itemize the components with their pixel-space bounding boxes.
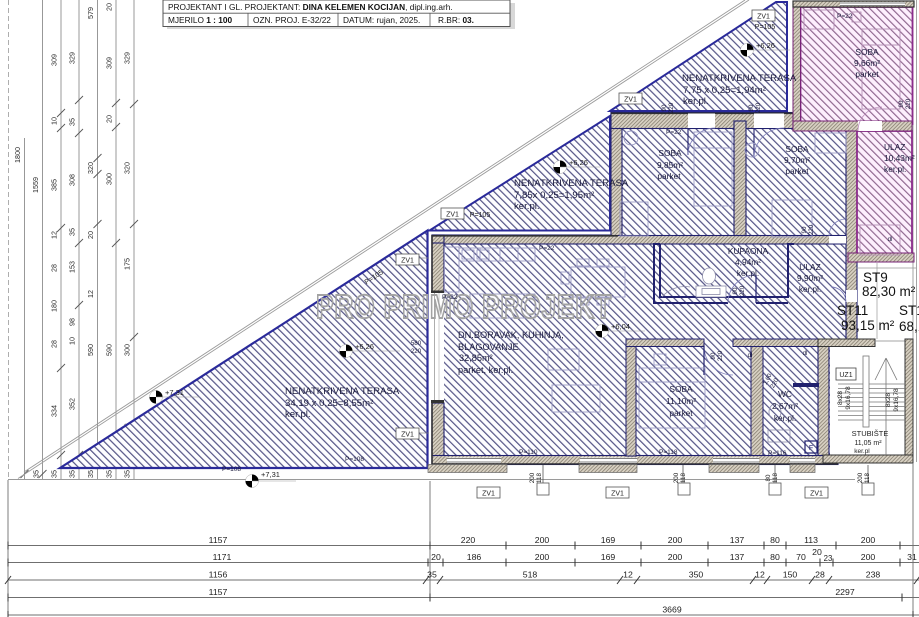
svg-text:1156: 1156 xyxy=(209,570,228,580)
svg-text:220: 220 xyxy=(905,98,912,109)
svg-text:35: 35 xyxy=(68,470,77,478)
svg-text:9x16,78: 9x16,78 xyxy=(845,386,852,410)
svg-text:200: 200 xyxy=(861,552,876,562)
svg-text:ST11: ST11 xyxy=(837,303,868,318)
svg-text:1171: 1171 xyxy=(213,552,232,562)
svg-text:9,66m²: 9,66m² xyxy=(854,58,880,68)
svg-text:80: 80 xyxy=(765,474,772,481)
svg-text:NENATKRIVENA TERASA: NENATKRIVENA TERASA xyxy=(285,386,400,397)
svg-text:2297: 2297 xyxy=(835,587,854,597)
svg-text:35: 35 xyxy=(32,470,41,478)
svg-text:175: 175 xyxy=(123,258,132,270)
svg-text:WC: WC xyxy=(778,389,792,399)
svg-text:+7,31: +7,31 xyxy=(165,388,184,397)
svg-text:200: 200 xyxy=(673,472,680,483)
svg-text:238: 238 xyxy=(866,570,881,580)
svg-text:590: 590 xyxy=(86,344,95,356)
svg-text:ker.pl.: ker.pl. xyxy=(285,409,311,420)
svg-text:ker.pl.: ker.pl. xyxy=(884,164,906,174)
svg-text:300: 300 xyxy=(123,344,132,356)
svg-text:parket: parket xyxy=(855,69,879,79)
svg-text:10,43m²: 10,43m² xyxy=(884,153,915,163)
svg-text:309: 309 xyxy=(50,54,59,66)
svg-text:90: 90 xyxy=(732,287,739,294)
svg-text:NENATKRIVENA TERASA: NENATKRIVENA TERASA xyxy=(514,178,629,189)
svg-text:153: 153 xyxy=(68,261,77,273)
svg-text:+6,04: +6,04 xyxy=(611,322,630,331)
svg-text:ZV1: ZV1 xyxy=(611,491,624,498)
svg-text:12: 12 xyxy=(86,290,95,298)
svg-text:180: 180 xyxy=(50,300,59,312)
svg-text:320: 320 xyxy=(123,162,132,174)
svg-text:3669: 3669 xyxy=(662,605,681,615)
svg-text:90: 90 xyxy=(801,226,808,233)
svg-text:28: 28 xyxy=(815,570,825,580)
svg-text:200: 200 xyxy=(861,535,876,545)
svg-text:+6,26: +6,26 xyxy=(355,342,374,351)
svg-text:186: 186 xyxy=(467,552,482,562)
svg-text:P=22: P=22 xyxy=(539,245,555,252)
svg-text:10: 10 xyxy=(68,337,77,345)
svg-text:90: 90 xyxy=(898,100,905,107)
svg-text:1157: 1157 xyxy=(209,535,228,545)
svg-text:ker.pl.: ker.pl. xyxy=(683,96,709,107)
svg-text:12: 12 xyxy=(755,570,765,580)
svg-text:UZ1: UZ1 xyxy=(839,372,852,379)
svg-text:parket: parket xyxy=(669,408,693,418)
svg-text:+6,26: +6,26 xyxy=(756,41,775,50)
svg-text:SOBA: SOBA xyxy=(658,148,682,158)
svg-text:220: 220 xyxy=(755,102,762,113)
svg-text:90: 90 xyxy=(661,104,668,111)
svg-text:220: 220 xyxy=(668,102,675,113)
svg-text:11,05 m²: 11,05 m² xyxy=(854,440,882,447)
svg-text:+7,31: +7,31 xyxy=(261,470,280,479)
svg-text:20: 20 xyxy=(431,552,441,562)
svg-text:P=22: P=22 xyxy=(837,13,853,20)
svg-text:90: 90 xyxy=(748,104,755,111)
svg-text:35: 35 xyxy=(105,470,114,478)
svg-text:8x28: 8x28 xyxy=(885,393,892,407)
svg-text:23: 23 xyxy=(824,554,833,563)
svg-text:329: 329 xyxy=(123,52,132,64)
svg-text:MJERILO 1 : 100: MJERILO 1 : 100 xyxy=(168,15,232,25)
svg-text:150: 150 xyxy=(783,570,798,580)
svg-text:12: 12 xyxy=(50,231,59,239)
svg-text:35: 35 xyxy=(68,118,77,126)
svg-text:28: 28 xyxy=(50,340,59,348)
svg-text:137: 137 xyxy=(730,535,745,545)
svg-text:70: 70 xyxy=(796,552,806,562)
svg-text:dl: dl xyxy=(748,352,753,359)
svg-text:ker.pl.: ker.pl. xyxy=(799,284,821,294)
svg-text:28: 28 xyxy=(50,264,59,272)
svg-text:200: 200 xyxy=(535,552,550,562)
svg-text:220: 220 xyxy=(739,285,746,296)
svg-text:KUPAONA: KUPAONA xyxy=(728,246,769,256)
svg-text:10: 10 xyxy=(50,117,59,125)
svg-text:ULAZ: ULAZ xyxy=(884,142,905,152)
svg-text:ZV1: ZV1 xyxy=(810,491,823,498)
svg-text:98: 98 xyxy=(68,318,77,326)
svg-text:220: 220 xyxy=(461,535,476,545)
svg-text:329: 329 xyxy=(68,52,77,64)
svg-text:12: 12 xyxy=(623,570,633,580)
svg-text:P=105: P=105 xyxy=(755,24,776,31)
svg-text:9,90m²: 9,90m² xyxy=(797,273,823,283)
svg-text:R.BR: 03.: R.BR: 03. xyxy=(438,15,474,25)
svg-text:32,85m²: 32,85m² xyxy=(459,353,493,363)
svg-text:PRO PRIMO PROJEKT: PRO PRIMO PROJEKT xyxy=(316,288,612,325)
svg-text:8x28: 8x28 xyxy=(837,391,844,405)
svg-text:80: 80 xyxy=(770,552,780,562)
svg-text:P=108: P=108 xyxy=(345,456,364,463)
svg-text:7,85x 0,25=1,95m²: 7,85x 0,25=1,95m² xyxy=(514,190,595,201)
svg-text:NENATKRIVENA TERASA: NENATKRIVENA TERASA xyxy=(682,73,797,84)
svg-text:590: 590 xyxy=(105,344,114,356)
svg-text:580: 580 xyxy=(411,340,422,347)
svg-text:dl: dl xyxy=(888,236,893,243)
svg-text:dl: dl xyxy=(803,350,808,357)
svg-text:1157: 1157 xyxy=(209,587,228,597)
svg-text:OZN. PROJ. E-32/22: OZN. PROJ. E-32/22 xyxy=(253,15,331,25)
svg-text:518: 518 xyxy=(523,570,538,580)
svg-text:82,30 m²: 82,30 m² xyxy=(862,284,916,299)
svg-text:P=108: P=108 xyxy=(222,466,241,473)
svg-text:P=110: P=110 xyxy=(519,449,538,456)
svg-text:DN.BORAVAK, KUHINJA,: DN.BORAVAK, KUHINJA, xyxy=(458,330,564,340)
svg-text:1559: 1559 xyxy=(31,177,40,193)
svg-text:ST1: ST1 xyxy=(899,303,919,318)
svg-text:ZV1: ZV1 xyxy=(757,14,770,21)
svg-text:parket: parket xyxy=(657,171,681,181)
svg-text:ZV1: ZV1 xyxy=(401,258,414,265)
svg-text:352: 352 xyxy=(68,398,77,410)
svg-text:200: 200 xyxy=(857,472,864,483)
svg-text:BLAGOVANJE: BLAGOVANJE xyxy=(458,342,519,352)
svg-text:220: 220 xyxy=(808,224,815,235)
svg-text:118: 118 xyxy=(772,473,779,483)
svg-text:68,1: 68,1 xyxy=(899,319,919,334)
svg-text:F: F xyxy=(809,445,813,452)
svg-text:35: 35 xyxy=(86,470,95,478)
svg-text:P=116: P=116 xyxy=(768,450,787,457)
svg-text:ZV1: ZV1 xyxy=(624,97,637,104)
svg-text:118: 118 xyxy=(536,473,543,483)
svg-text:20: 20 xyxy=(812,547,822,557)
svg-text:350: 350 xyxy=(689,570,704,580)
svg-text:ZV1: ZV1 xyxy=(446,212,459,219)
svg-text:200: 200 xyxy=(668,535,683,545)
svg-text:STUBIŠTE: STUBIŠTE xyxy=(852,429,889,438)
svg-text:ker.pl.: ker.pl. xyxy=(514,201,540,212)
svg-text:ST9: ST9 xyxy=(863,270,888,285)
svg-text:ZV1: ZV1 xyxy=(482,491,495,498)
svg-text:80: 80 xyxy=(770,535,780,545)
svg-text:SOBA: SOBA xyxy=(855,47,879,57)
svg-text:parket: parket xyxy=(785,166,809,176)
svg-text:1800: 1800 xyxy=(13,147,22,163)
svg-text:308: 308 xyxy=(68,174,77,186)
svg-text:579: 579 xyxy=(86,7,95,19)
svg-text:P=22: P=22 xyxy=(666,129,682,136)
svg-text:200: 200 xyxy=(668,552,683,562)
svg-text:200: 200 xyxy=(529,472,536,483)
svg-text:34,19 x 0,25=8,55m²: 34,19 x 0,25=8,55m² xyxy=(285,398,374,409)
svg-text:9x16,78: 9x16,78 xyxy=(893,388,900,412)
svg-text:DATUM: rujan, 2025.: DATUM: rujan, 2025. xyxy=(343,15,420,25)
svg-text:SOBA: SOBA xyxy=(785,144,809,154)
svg-text:+6,26: +6,26 xyxy=(569,158,588,167)
svg-text:7,75 x 0,25=1,94m²: 7,75 x 0,25=1,94m² xyxy=(683,85,767,96)
svg-text:PROJEKTANT I GL. PROJEKTANT: D: PROJEKTANT I GL. PROJEKTANT: DINA KELEME… xyxy=(168,2,453,12)
svg-text:220: 220 xyxy=(411,348,422,355)
svg-text:113: 113 xyxy=(804,535,818,545)
svg-text:4,94m²: 4,94m² xyxy=(735,257,761,267)
svg-text:118: 118 xyxy=(680,473,687,483)
svg-text:31: 31 xyxy=(907,552,917,562)
svg-text:118: 118 xyxy=(864,473,871,483)
svg-text:P=105: P=105 xyxy=(470,212,491,219)
svg-text:20: 20 xyxy=(105,115,114,123)
svg-text:35: 35 xyxy=(50,470,59,478)
svg-text:P=118: P=118 xyxy=(659,449,678,456)
svg-text:20: 20 xyxy=(86,231,95,239)
svg-text:ZV1: ZV1 xyxy=(401,432,414,439)
svg-text:9,85m²: 9,85m² xyxy=(657,160,683,170)
svg-text:220: 220 xyxy=(717,350,724,361)
svg-text:334: 334 xyxy=(50,405,59,417)
svg-text:35: 35 xyxy=(427,570,437,580)
svg-text:35: 35 xyxy=(68,228,77,236)
svg-text:169: 169 xyxy=(601,552,616,562)
svg-text:ker.pl.: ker.pl. xyxy=(774,413,796,423)
svg-text:90: 90 xyxy=(710,352,717,359)
svg-text:2,67m²: 2,67m² xyxy=(772,401,798,411)
svg-text:ULAZ: ULAZ xyxy=(799,262,820,272)
svg-text:P=22: P=22 xyxy=(442,294,458,301)
svg-text:9,70m²: 9,70m² xyxy=(784,155,810,165)
svg-text:137: 137 xyxy=(730,552,745,562)
svg-text:169: 169 xyxy=(601,535,616,545)
svg-text:320: 320 xyxy=(86,162,95,174)
svg-text:ker.pl: ker.pl xyxy=(854,448,870,455)
svg-text:200: 200 xyxy=(535,535,550,545)
svg-text:ker.pl.: ker.pl. xyxy=(737,268,759,278)
svg-text:309: 309 xyxy=(105,57,114,69)
svg-text:20: 20 xyxy=(105,3,114,11)
svg-text:300: 300 xyxy=(105,173,114,185)
svg-text:11,10m²: 11,10m² xyxy=(666,396,696,406)
svg-text:SOBA: SOBA xyxy=(669,384,693,394)
svg-text:35: 35 xyxy=(123,470,132,478)
svg-text:93,15 m²: 93,15 m² xyxy=(841,318,895,333)
svg-text:parket, ker.pl.: parket, ker.pl. xyxy=(458,365,513,375)
svg-text:385: 385 xyxy=(50,179,59,191)
